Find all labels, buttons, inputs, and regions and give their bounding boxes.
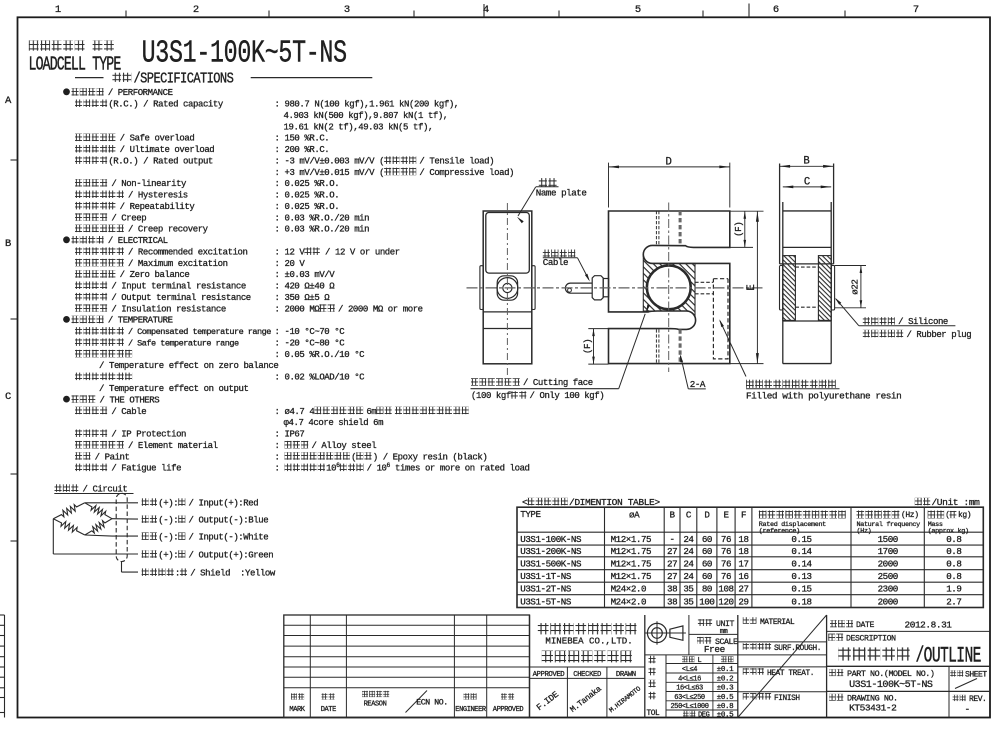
svg-text:: -20 °C~80 °C: : -20 °C~80 °C [275, 338, 346, 348]
svg-text::: : [275, 452, 285, 462]
svg-text:<: < [522, 497, 528, 508]
svg-text:/ Recommended excitation: / Recommended excitation [128, 247, 248, 257]
svg-text:<L≤4: <L≤4 [682, 666, 697, 674]
svg-text:/ Cable: / Cable [111, 407, 146, 417]
svg-text:KT53431-2: KT53431-2 [849, 703, 897, 714]
svg-text:TYPE: TYPE [520, 509, 541, 520]
svg-text:1: 1 [55, 4, 61, 16]
svg-text:27: 27 [667, 546, 677, 557]
svg-text:: 2000 MΩ: : 2000 MΩ [275, 304, 321, 314]
svg-text:/ Alloy steel: / Alloy steel [311, 441, 376, 451]
svg-text:C: C [804, 176, 810, 188]
svg-text:: -3 mV/V±0.003 mV/V (: : -3 mV/V±0.003 mV/V ( [275, 156, 385, 166]
svg-text:B: B [803, 156, 809, 168]
svg-text:/ Non-linearity: / Non-linearity [111, 179, 187, 189]
svg-text:/ Compensated temperature rang: / Compensated temperature range [128, 327, 271, 337]
svg-text:4<L≤16: 4<L≤16 [678, 675, 701, 683]
svg-text:108: 108 [718, 584, 733, 595]
svg-text:: 150 %R.C.: : 150 %R.C. [275, 134, 330, 144]
svg-text:: -10 °C~70 °C: : -10 °C~70 °C [275, 327, 346, 337]
svg-text:-: - [670, 534, 675, 545]
svg-text:M12×1.75: M12×1.75 [611, 558, 652, 569]
svg-text:60: 60 [702, 558, 712, 569]
svg-text::: : [275, 441, 285, 451]
svg-text:/ Zero balance: / Zero balance [120, 270, 190, 280]
svg-text:0.15: 0.15 [791, 534, 811, 545]
svg-text:TOL: TOL [647, 710, 660, 718]
svg-text:M24×2.0: M24×2.0 [611, 596, 646, 607]
svg-text:±0.2: ±0.2 [717, 675, 734, 683]
svg-text:/ Shield :Yellow: / Shield :Yellow [190, 568, 276, 578]
svg-text:±0.8: ±0.8 [717, 703, 734, 711]
svg-text:kg): kg) [958, 511, 971, 520]
svg-text:DATE: DATE [856, 621, 875, 630]
svg-text:: ø4.7 4: : ø4.7 4 [275, 407, 315, 417]
svg-text:/ Tensile load): / Tensile load) [419, 156, 494, 166]
svg-text:80: 80 [702, 584, 712, 595]
svg-text:DATE: DATE [321, 706, 336, 714]
svg-text:(Hz): (Hz) [901, 511, 919, 520]
svg-text:Filled with polyurethane resin: Filled with polyurethane resin [746, 390, 901, 401]
svg-text:27: 27 [738, 584, 748, 595]
svg-text:/ Compressive load): / Compressive load) [419, 168, 514, 178]
svg-text:0.13: 0.13 [791, 571, 811, 582]
svg-text:CHECKED: CHECKED [573, 671, 602, 679]
svg-text:16: 16 [738, 571, 748, 582]
svg-text:: 0.02 %LOAD/10 °C: : 0.02 %LOAD/10 °C [275, 373, 366, 383]
svg-text:/ Safe overload: / Safe overload [120, 134, 195, 144]
svg-text:E: E [746, 284, 758, 290]
svg-text:: 20 V: : 20 V [275, 259, 306, 269]
svg-text:/ Insulation resistance: / Insulation resistance [111, 304, 226, 314]
svg-text:: 0.05 %R.O./10 °C: : 0.05 %R.O./10 °C [275, 350, 366, 360]
svg-text:7: 7 [913, 4, 919, 16]
svg-text:24: 24 [683, 558, 694, 569]
svg-text:(F): (F) [733, 222, 744, 237]
svg-text:øA: øA [629, 510, 640, 521]
svg-text:: 0.025 %R.O.: : 0.025 %R.O. [275, 191, 340, 201]
svg-text:120: 120 [718, 596, 733, 607]
svg-text:60: 60 [702, 546, 712, 557]
svg-text:6: 6 [336, 462, 340, 469]
svg-text:U3S1-100K~5T-NS: U3S1-100K~5T-NS [849, 680, 933, 691]
svg-text:/OUTLINE: /OUTLINE [916, 644, 982, 669]
svg-text:38: 38 [667, 596, 677, 607]
svg-text:/SPECIFICATIONS: /SPECIFICATIONS [134, 70, 234, 86]
svg-text:: 0.025 %R.O.: : 0.025 %R.O. [275, 179, 340, 189]
svg-text:/ Output(-):Blue: / Output(-):Blue [189, 515, 269, 525]
svg-text:PART NO.(MODEL NO.): PART NO.(MODEL NO.) [847, 669, 935, 679]
svg-text:35: 35 [683, 596, 693, 607]
svg-text:U3S1-5T-NS: U3S1-5T-NS [520, 596, 572, 607]
svg-text:HEAT TREAT.: HEAT TREAT. [767, 670, 814, 678]
svg-text:(+):: (+): [158, 550, 178, 560]
svg-text:/ Output(+):Green: / Output(+):Green [189, 550, 274, 560]
svg-text:/ IP Protection: / IP Protection [111, 430, 186, 440]
svg-text:-: - [965, 704, 971, 715]
svg-text:24: 24 [683, 534, 694, 545]
svg-text:10: 10 [326, 464, 336, 474]
svg-text:38: 38 [667, 584, 677, 595]
svg-text:19.61 kN(2 tf),49.03 kN(5 tf),: 19.61 kN(2 tf),49.03 kN(5 tf), [284, 122, 433, 132]
svg-text:Cable: Cable [543, 257, 568, 268]
svg-text:/ THE OTHERS: / THE OTHERS [99, 395, 159, 405]
svg-text:/ Temperature effect on output: / Temperature effect on output [99, 384, 248, 394]
svg-text:/ ELECTRICAL: / ELECTRICAL [108, 236, 168, 246]
svg-text:/ Maximum excitation: / Maximum excitation [128, 259, 228, 269]
svg-text:2: 2 [193, 4, 199, 16]
svg-text:76: 76 [721, 558, 731, 569]
svg-text:U3S1-500K-NS: U3S1-500K-NS [520, 558, 582, 569]
svg-text::: : [175, 568, 180, 578]
svg-text:U3S1-200K-NS: U3S1-200K-NS [520, 546, 582, 557]
svg-text:60: 60 [702, 571, 712, 582]
svg-text:/ Temperature effect on zero b: / Temperature effect on zero balance [99, 361, 278, 371]
svg-text:SHEET: SHEET [965, 671, 987, 680]
svg-text:6: 6 [773, 4, 779, 16]
svg-text:3: 3 [344, 4, 350, 16]
svg-text:±0.1: ±0.1 [717, 666, 734, 674]
svg-text:63<L≤250: 63<L≤250 [674, 694, 705, 702]
svg-text:76: 76 [721, 534, 731, 545]
svg-text:: 420 Ω±40 Ω: : 420 Ω±40 Ω [275, 282, 336, 292]
svg-text:0.18: 0.18 [791, 596, 811, 607]
svg-text:: 350 Ω±5 Ω: : 350 Ω±5 Ω [275, 293, 331, 303]
svg-text:: ±0.03 mV/V: : ±0.03 mV/V [275, 270, 336, 280]
svg-text:(-):: (-): [158, 515, 178, 525]
svg-text:U3S1-2T-NS: U3S1-2T-NS [520, 584, 572, 595]
svg-text:U3S1-100K-NS: U3S1-100K-NS [520, 534, 582, 545]
svg-text:76: 76 [721, 571, 731, 582]
svg-text:±0.5: ±0.5 [717, 712, 734, 720]
svg-text:18: 18 [738, 546, 748, 557]
svg-text:4.903 kN(500 kgf),9.807 kN(1 t: 4.903 kN(500 kgf),9.807 kN(1 tf), [284, 111, 448, 121]
svg-text:/ Element material: / Element material [128, 441, 218, 451]
svg-text:U3S1-100K~5T-NS: U3S1-100K~5T-NS [142, 36, 347, 71]
svg-text:(+):: (+): [158, 498, 178, 508]
svg-text:M24×2.0: M24×2.0 [611, 584, 646, 595]
svg-text:35: 35 [683, 584, 693, 595]
svg-text:: +3 mV/V±0.015 mV/V (: : +3 mV/V±0.015 mV/V ( [275, 168, 385, 178]
svg-text:B: B [5, 238, 11, 250]
svg-text:: IP67: : IP67 [275, 430, 305, 440]
svg-text:16<L≤63: 16<L≤63 [676, 685, 703, 693]
svg-text:/ Hysteresis: / Hysteresis [128, 191, 188, 201]
svg-text:6m: 6m [366, 407, 376, 417]
svg-text:/ Only 100 kgf): / Only 100 kgf) [530, 391, 605, 401]
svg-text:/ Paint: / Paint [95, 452, 130, 462]
svg-text:Name plate: Name plate [536, 188, 587, 199]
svg-text:5: 5 [635, 4, 641, 16]
svg-text:29: 29 [738, 596, 748, 607]
svg-text:2300: 2300 [878, 584, 898, 595]
svg-text:: 0.03 %R.O./20 min: : 0.03 %R.O./20 min [275, 213, 370, 223]
svg-text:(F): (F) [582, 339, 593, 354]
svg-text:2.7: 2.7 [946, 596, 961, 607]
svg-text:DRAWN: DRAWN [616, 671, 636, 679]
svg-text:MINEBEA CO.,LTD.: MINEBEA CO.,LTD. [545, 636, 632, 647]
svg-text:250<L≤1000: 250<L≤1000 [670, 703, 708, 711]
svg-text:REASON: REASON [364, 701, 387, 709]
svg-text:1500: 1500 [878, 534, 898, 545]
svg-text:76: 76 [721, 546, 731, 557]
svg-text:/ Cutting face: / Cutting face [523, 378, 593, 388]
svg-text:φ4.7 4core shield 6m: φ4.7 4core shield 6m [284, 418, 384, 428]
svg-text:: 0.025 %R.O.: : 0.025 %R.O. [275, 202, 340, 212]
svg-text:/ Output terminal resistance: / Output terminal resistance [111, 293, 250, 303]
svg-text:(-):: (-): [158, 532, 178, 542]
svg-text:0.8: 0.8 [946, 571, 961, 582]
svg-text:APPROVED: APPROVED [533, 671, 566, 679]
svg-text:APPROVED: APPROVED [493, 706, 524, 714]
svg-text:0.8: 0.8 [946, 534, 961, 545]
svg-text:1.9: 1.9 [946, 584, 961, 595]
svg-text:/ Creep: / Creep [111, 213, 146, 223]
svg-text:±0.5: ±0.5 [717, 694, 734, 702]
svg-text:0.8: 0.8 [946, 546, 961, 557]
svg-text:60: 60 [702, 534, 712, 545]
svg-text:0.8: 0.8 [946, 558, 961, 569]
svg-text:C: C [5, 391, 11, 403]
svg-text:24: 24 [683, 571, 694, 582]
svg-text:U3S1-1T-NS: U3S1-1T-NS [520, 571, 572, 582]
svg-text:: 980.7 N(100 kgf),1.961 kN(20: : 980.7 N(100 kgf),1.961 kN(200 kgf), [275, 100, 459, 110]
svg-text:2000: 2000 [878, 596, 898, 607]
svg-text:ECN NO.: ECN NO. [416, 699, 448, 708]
svg-text:M12×1.75: M12×1.75 [611, 571, 652, 582]
svg-text:mm: mm [720, 628, 728, 636]
svg-text:(: ( [945, 511, 949, 520]
svg-text:/ Safe temperature range: / Safe temperature range [128, 338, 239, 348]
svg-text:) / Epoxy resin (black): ) / Epoxy resin (black) [373, 452, 488, 462]
svg-text:/ Input terminal resistance: / Input terminal resistance [111, 282, 246, 292]
svg-text:/ 10: / 10 [367, 464, 387, 474]
svg-text:(R.C.) / Rated capacity: (R.C.) / Rated capacity [108, 100, 224, 110]
svg-text:/ Ultimate overload: / Ultimate overload [120, 145, 215, 155]
svg-text:LOADCELL TYPE: LOADCELL TYPE [29, 53, 121, 75]
svg-text:100: 100 [699, 596, 714, 607]
svg-text:DESCRIPTION: DESCRIPTION [846, 635, 896, 644]
svg-text:MATERIAL: MATERIAL [760, 619, 795, 627]
svg-text:(Hz): (Hz) [857, 527, 872, 535]
svg-text:27: 27 [667, 571, 677, 582]
svg-text:24: 24 [683, 546, 694, 557]
svg-text:M12×1.75: M12×1.75 [611, 534, 652, 545]
svg-text:/ TEMPERATURE: / TEMPERATURE [108, 316, 173, 326]
svg-text:/ 12 V or under: / 12 V or under [325, 247, 400, 257]
svg-text:27: 27 [667, 558, 677, 569]
svg-text:0.14: 0.14 [791, 546, 812, 557]
svg-text:ENGINEER: ENGINEER [455, 706, 487, 714]
svg-text:±0.3: ±0.3 [717, 685, 734, 693]
svg-text:/ Fatigue life: / Fatigue life [111, 464, 181, 474]
svg-text:REV.: REV. [969, 695, 986, 704]
svg-text:17: 17 [738, 558, 748, 569]
svg-text:/Unit :mm: /Unit :mm [931, 497, 980, 508]
svg-text:/DIMENTION TABLE>: /DIMENTION TABLE> [569, 497, 660, 508]
svg-text:/ Repeatability: / Repeatability [120, 202, 196, 212]
svg-text:2000: 2000 [878, 558, 898, 569]
svg-text:(: ( [351, 452, 356, 462]
svg-text:MARK: MARK [289, 706, 305, 714]
svg-text:(R.O.) / Rated output: (R.O.) / Rated output [108, 156, 213, 166]
svg-text:0.15: 0.15 [791, 584, 811, 595]
svg-text:A: A [5, 95, 12, 107]
svg-text::: : [275, 464, 285, 474]
svg-text:: 12 V: : 12 V [275, 247, 306, 257]
svg-text:/ Rubber plug: / Rubber plug [906, 330, 971, 340]
svg-text:/ 2000 MΩ or more: / 2000 MΩ or more [338, 304, 423, 314]
svg-text:Free: Free [704, 644, 726, 655]
svg-text:F: F [741, 510, 746, 521]
svg-text:/ Input(-):White: / Input(-):White [189, 532, 269, 542]
svg-text:ø22: ø22 [849, 279, 860, 294]
svg-text:/ Input(+):Red: / Input(+):Red [189, 498, 259, 508]
svg-text:/ Creep recovery: / Creep recovery [128, 225, 209, 235]
svg-text:FINISH: FINISH [774, 695, 800, 703]
svg-text:D: D [666, 156, 672, 168]
svg-text:times or more on rated load: times or more on rated load [390, 464, 529, 474]
svg-text:/ Circuit: / Circuit [82, 484, 127, 494]
svg-text:1700: 1700 [878, 546, 898, 557]
svg-text:18: 18 [738, 534, 748, 545]
svg-text:M12×1.75: M12×1.75 [611, 546, 652, 557]
svg-text:L: L [698, 657, 702, 665]
svg-text:2012.8.31: 2012.8.31 [905, 619, 953, 630]
svg-text:0.14: 0.14 [791, 558, 812, 569]
svg-text:: 0.03 %R.O./20 min: : 0.03 %R.O./20 min [275, 225, 370, 235]
svg-text:: 200 %R.C.: : 200 %R.C. [275, 145, 330, 155]
svg-text:(100 kgf: (100 kgf [471, 391, 511, 401]
svg-text:2500: 2500 [878, 571, 898, 582]
svg-text:/ PERFORMANCE: / PERFORMANCE [108, 88, 173, 98]
svg-text:DEG: DEG [698, 712, 710, 720]
